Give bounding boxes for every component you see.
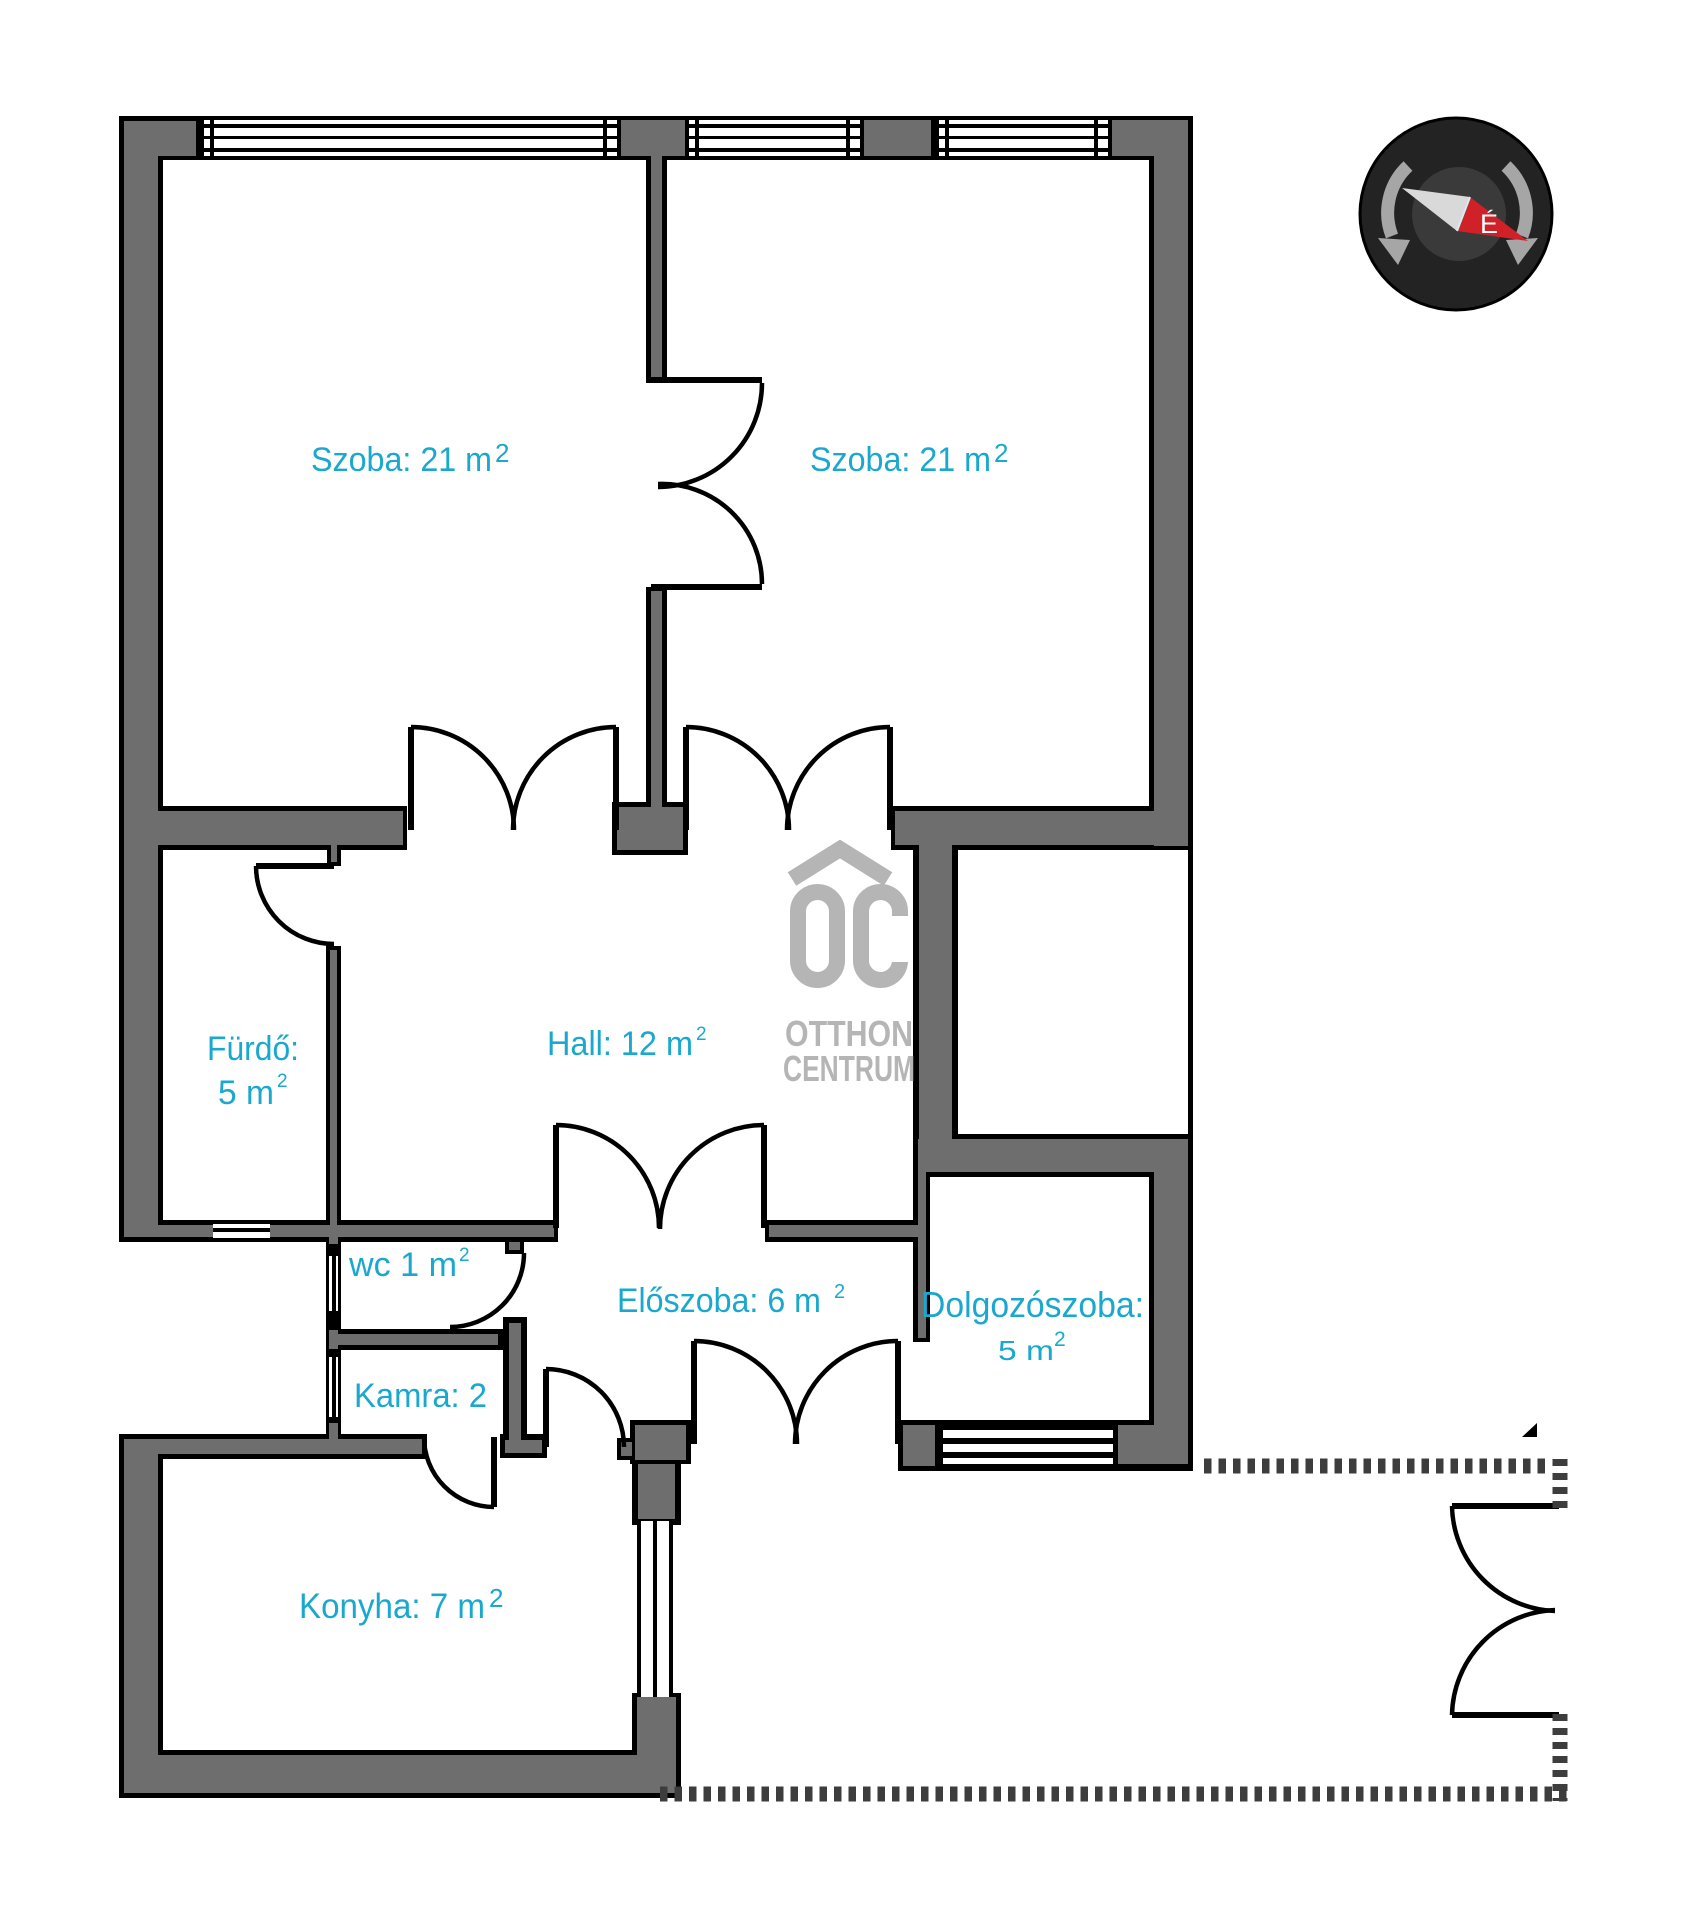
svg-text:Konyha: 7 m: Konyha: 7 m <box>299 1587 485 1626</box>
svg-text:2: 2 <box>834 1281 845 1303</box>
svg-text:CENTRUM: CENTRUM <box>783 1048 915 1089</box>
svg-text:2: 2 <box>1054 1328 1066 1351</box>
svg-text:wc 1 m: wc 1 m <box>348 1246 457 1284</box>
svg-text:Hall: 12 m: Hall: 12 m <box>547 1025 693 1063</box>
svg-text:2: 2 <box>994 438 1008 468</box>
svg-text:Dolgozószoba:: Dolgozószoba: <box>921 1284 1144 1325</box>
svg-text:2: 2 <box>489 1583 503 1613</box>
svg-text:Szoba: 21 m: Szoba: 21 m <box>810 441 991 479</box>
svg-text:2: 2 <box>277 1071 288 1092</box>
svg-text:Fürdő:: Fürdő: <box>207 1030 299 1068</box>
svg-text:2: 2 <box>459 1245 470 1266</box>
svg-text:Szoba: 21 m: Szoba: 21 m <box>311 441 492 479</box>
svg-text:2: 2 <box>495 438 509 468</box>
svg-text:É: É <box>1480 209 1498 239</box>
svg-text:Kamra: 2: Kamra: 2 <box>354 1377 487 1415</box>
svg-text:5 m: 5 m <box>998 1335 1054 1366</box>
svg-text:Előszoba: 6 m: Előszoba: 6 m <box>617 1282 821 1320</box>
svg-text:5 m: 5 m <box>218 1074 274 1112</box>
svg-text:2: 2 <box>696 1024 707 1045</box>
